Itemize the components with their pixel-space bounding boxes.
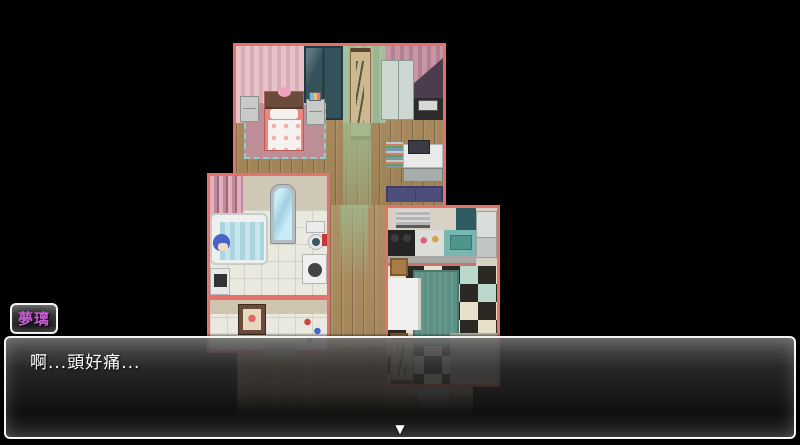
bathroom-room [207, 173, 330, 298]
bed-pillow [270, 109, 298, 119]
scroll-art [356, 61, 365, 124]
speaker-name: 夢璃 [18, 308, 50, 329]
mirror [270, 184, 296, 244]
desk-drawers [403, 168, 443, 182]
nightstand-left [240, 96, 259, 122]
kitchen-sink [444, 230, 476, 256]
microwave [418, 100, 438, 111]
nightstand-right [306, 99, 325, 125]
sofa [386, 186, 443, 202]
toilet-tank [306, 221, 325, 233]
washing-machine-left [210, 268, 230, 295]
nightstand-photo [309, 92, 321, 101]
bed-blanket [268, 120, 301, 150]
green-floor-strip [343, 123, 371, 208]
bookshelf [386, 142, 403, 168]
player-character-face [218, 243, 228, 251]
computer-monitor [408, 140, 430, 154]
washing-machine-right [302, 254, 327, 284]
framed-picture [238, 304, 266, 335]
chair [390, 258, 408, 276]
message-text: 啊...頭好痛... [30, 348, 140, 373]
kitchen-counter [415, 230, 444, 256]
message-window[interactable]: 啊...頭好痛... ▼ [4, 336, 796, 439]
dining-table [388, 278, 421, 330]
teal-tile [478, 284, 496, 302]
stove [388, 230, 415, 256]
teal-tile [460, 266, 478, 284]
towel [322, 234, 327, 246]
continue-arrow-icon[interactable]: ▼ [395, 423, 404, 435]
speaker-name-box: 夢璃 [10, 303, 58, 334]
bed [264, 91, 304, 151]
plush-toy [278, 87, 291, 97]
hallway-green-runner [340, 200, 368, 280]
wardrobe [381, 60, 414, 120]
refrigerator [476, 211, 497, 258]
storage-wall [210, 300, 327, 314]
game-screen: 夢璃 啊...頭好痛... ▼ [0, 0, 800, 445]
range-hood [396, 210, 430, 228]
